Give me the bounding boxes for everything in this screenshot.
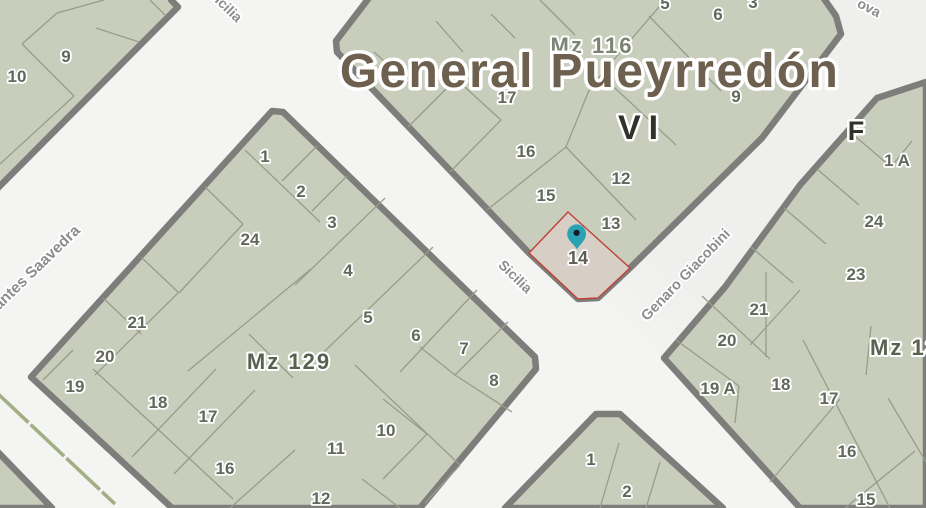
- svg-text:10: 10: [377, 421, 396, 440]
- svg-text:9: 9: [61, 47, 70, 66]
- svg-text:4: 4: [343, 261, 353, 280]
- svg-text:2: 2: [296, 182, 305, 201]
- svg-text:8: 8: [489, 371, 498, 390]
- svg-text:21: 21: [128, 313, 147, 332]
- svg-text:General Pueyrredón: General Pueyrredón: [340, 45, 840, 98]
- svg-text:19: 19: [66, 377, 85, 396]
- svg-text:20: 20: [718, 331, 737, 350]
- svg-text:5: 5: [363, 308, 372, 327]
- svg-text:F: F: [848, 116, 865, 146]
- svg-text:16: 16: [216, 459, 235, 478]
- svg-text:12: 12: [612, 169, 631, 188]
- svg-text:3: 3: [327, 213, 336, 232]
- svg-text:11: 11: [327, 439, 345, 458]
- svg-text:7: 7: [459, 339, 468, 358]
- svg-text:17: 17: [820, 389, 839, 408]
- svg-text:Mz 13: Mz 13: [870, 335, 926, 360]
- svg-text:1: 1: [586, 450, 595, 469]
- svg-text:14: 14: [568, 248, 588, 268]
- svg-text:15: 15: [857, 490, 876, 508]
- svg-text:VI: VI: [618, 109, 666, 147]
- svg-text:6: 6: [411, 326, 420, 345]
- svg-text:Mz 129: Mz 129: [247, 349, 331, 374]
- svg-text:16: 16: [517, 142, 536, 161]
- svg-text:24: 24: [865, 212, 884, 231]
- svg-text:3: 3: [748, 0, 757, 12]
- svg-text:1: 1: [260, 147, 269, 166]
- svg-text:12: 12: [312, 489, 331, 508]
- svg-text:15: 15: [537, 186, 556, 205]
- svg-text:5: 5: [660, 0, 669, 13]
- svg-text:1 A: 1 A: [884, 151, 910, 170]
- svg-text:2: 2: [622, 482, 631, 501]
- svg-text:16: 16: [838, 442, 857, 461]
- svg-text:18: 18: [149, 393, 168, 412]
- svg-text:6: 6: [713, 5, 722, 24]
- svg-text:20: 20: [96, 347, 115, 366]
- svg-text:23: 23: [847, 265, 866, 284]
- svg-text:17: 17: [199, 407, 218, 426]
- svg-text:10: 10: [8, 67, 27, 86]
- svg-text:13: 13: [602, 214, 621, 233]
- svg-text:21: 21: [750, 300, 769, 319]
- svg-text:24: 24: [241, 230, 260, 249]
- svg-text:18: 18: [772, 375, 791, 394]
- svg-text:19 A: 19 A: [700, 379, 735, 398]
